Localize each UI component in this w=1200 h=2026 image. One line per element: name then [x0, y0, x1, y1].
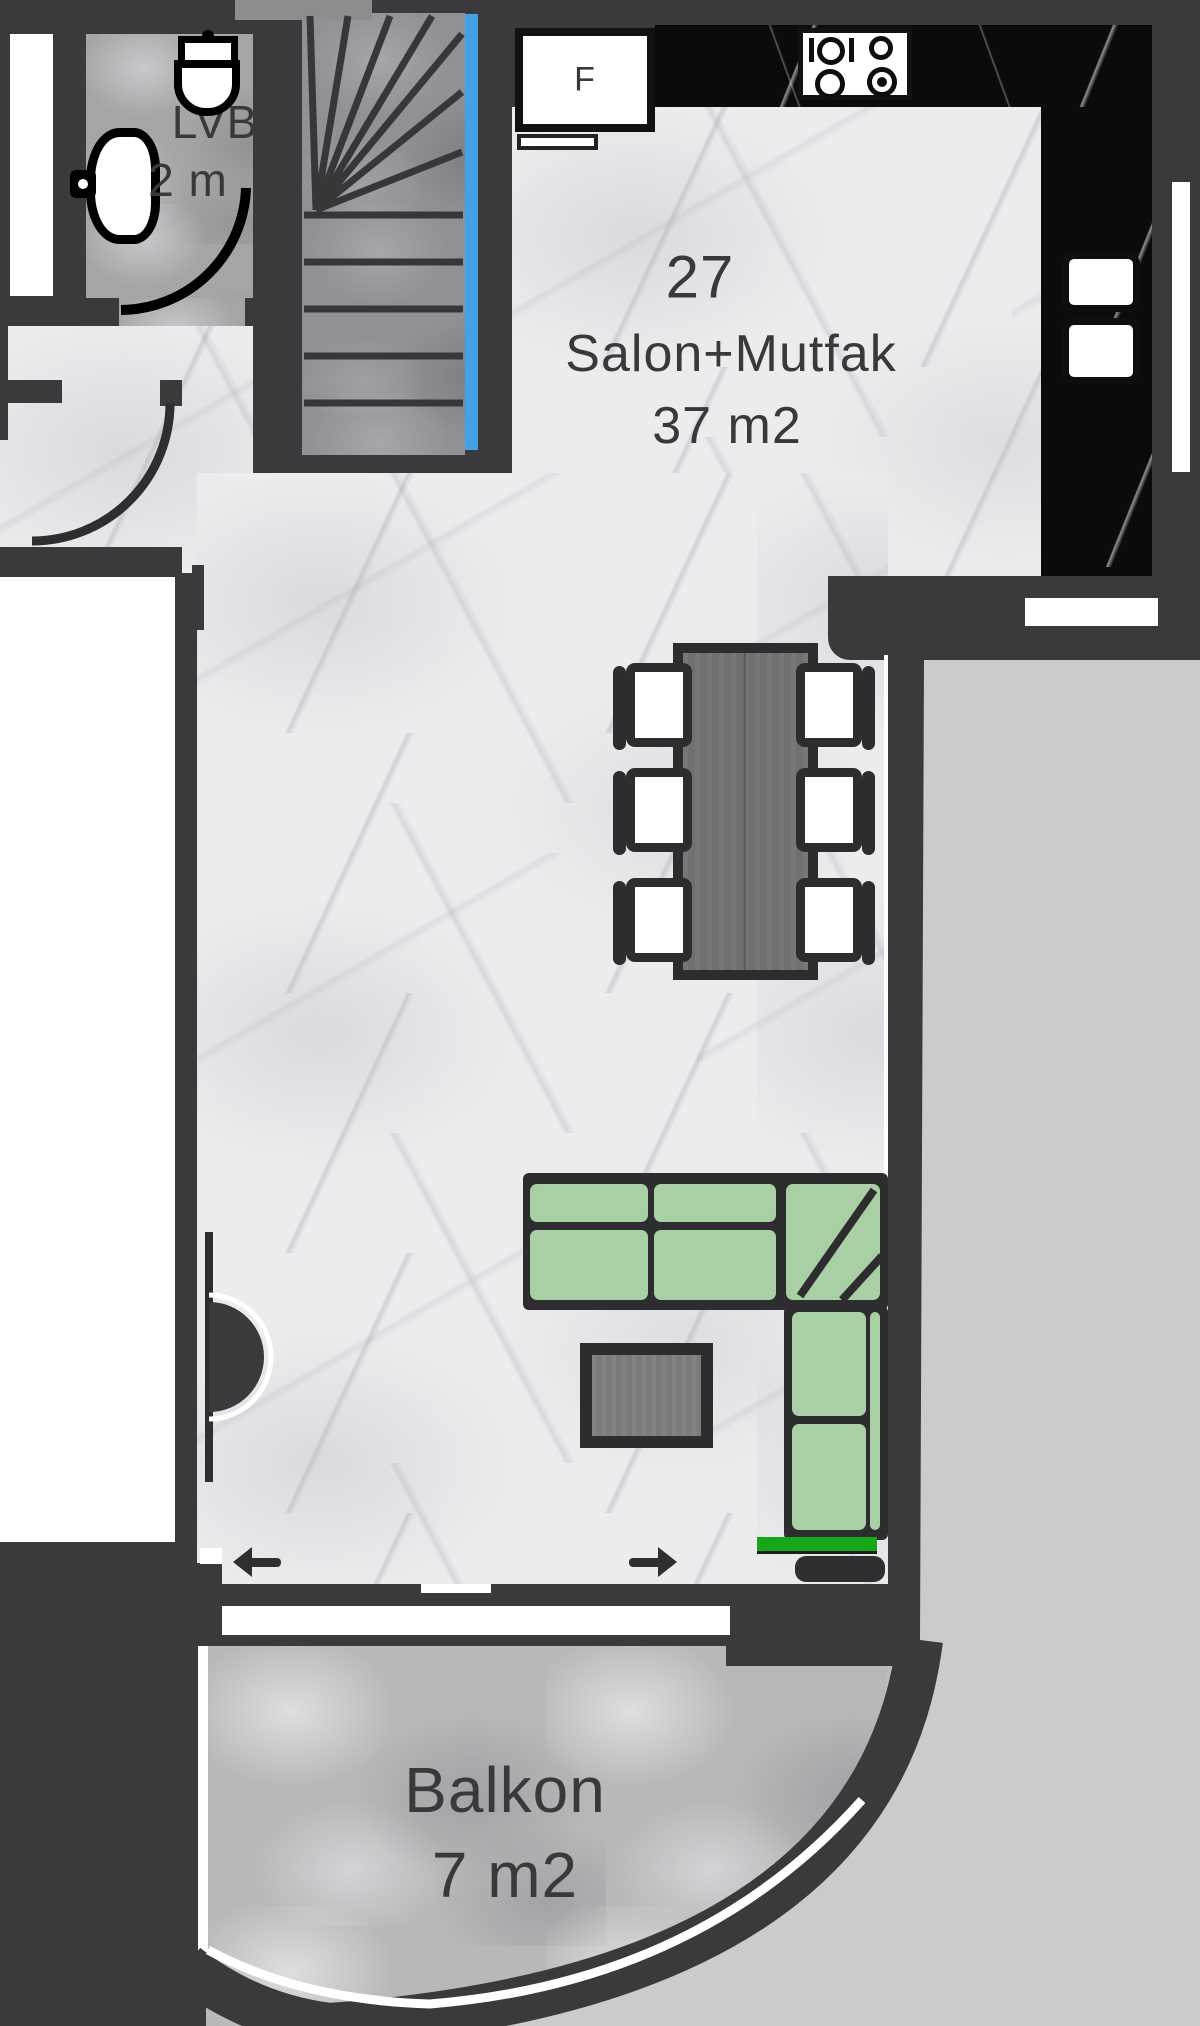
stairs-winder-treads: [310, 16, 462, 210]
plan-overlay: [0, 0, 1200, 2026]
room-name-label: Salon+Mutfak: [565, 324, 896, 384]
wc-area-label: 2 m: [148, 153, 228, 207]
sofa-corner-seams: [800, 1190, 882, 1300]
radiator-icon: [209, 1232, 271, 1482]
balcony-name-label: Balkon: [404, 1753, 606, 1827]
stairs-straight-treads: [304, 215, 463, 403]
floor-plan: LVB F: [0, 0, 1200, 2026]
balcony-area-label: 7 m2: [432, 1838, 578, 1912]
room-area-label: 37 m2: [652, 396, 802, 456]
entry-door-arc: [32, 403, 170, 541]
unit-number-label: 27: [666, 243, 735, 312]
